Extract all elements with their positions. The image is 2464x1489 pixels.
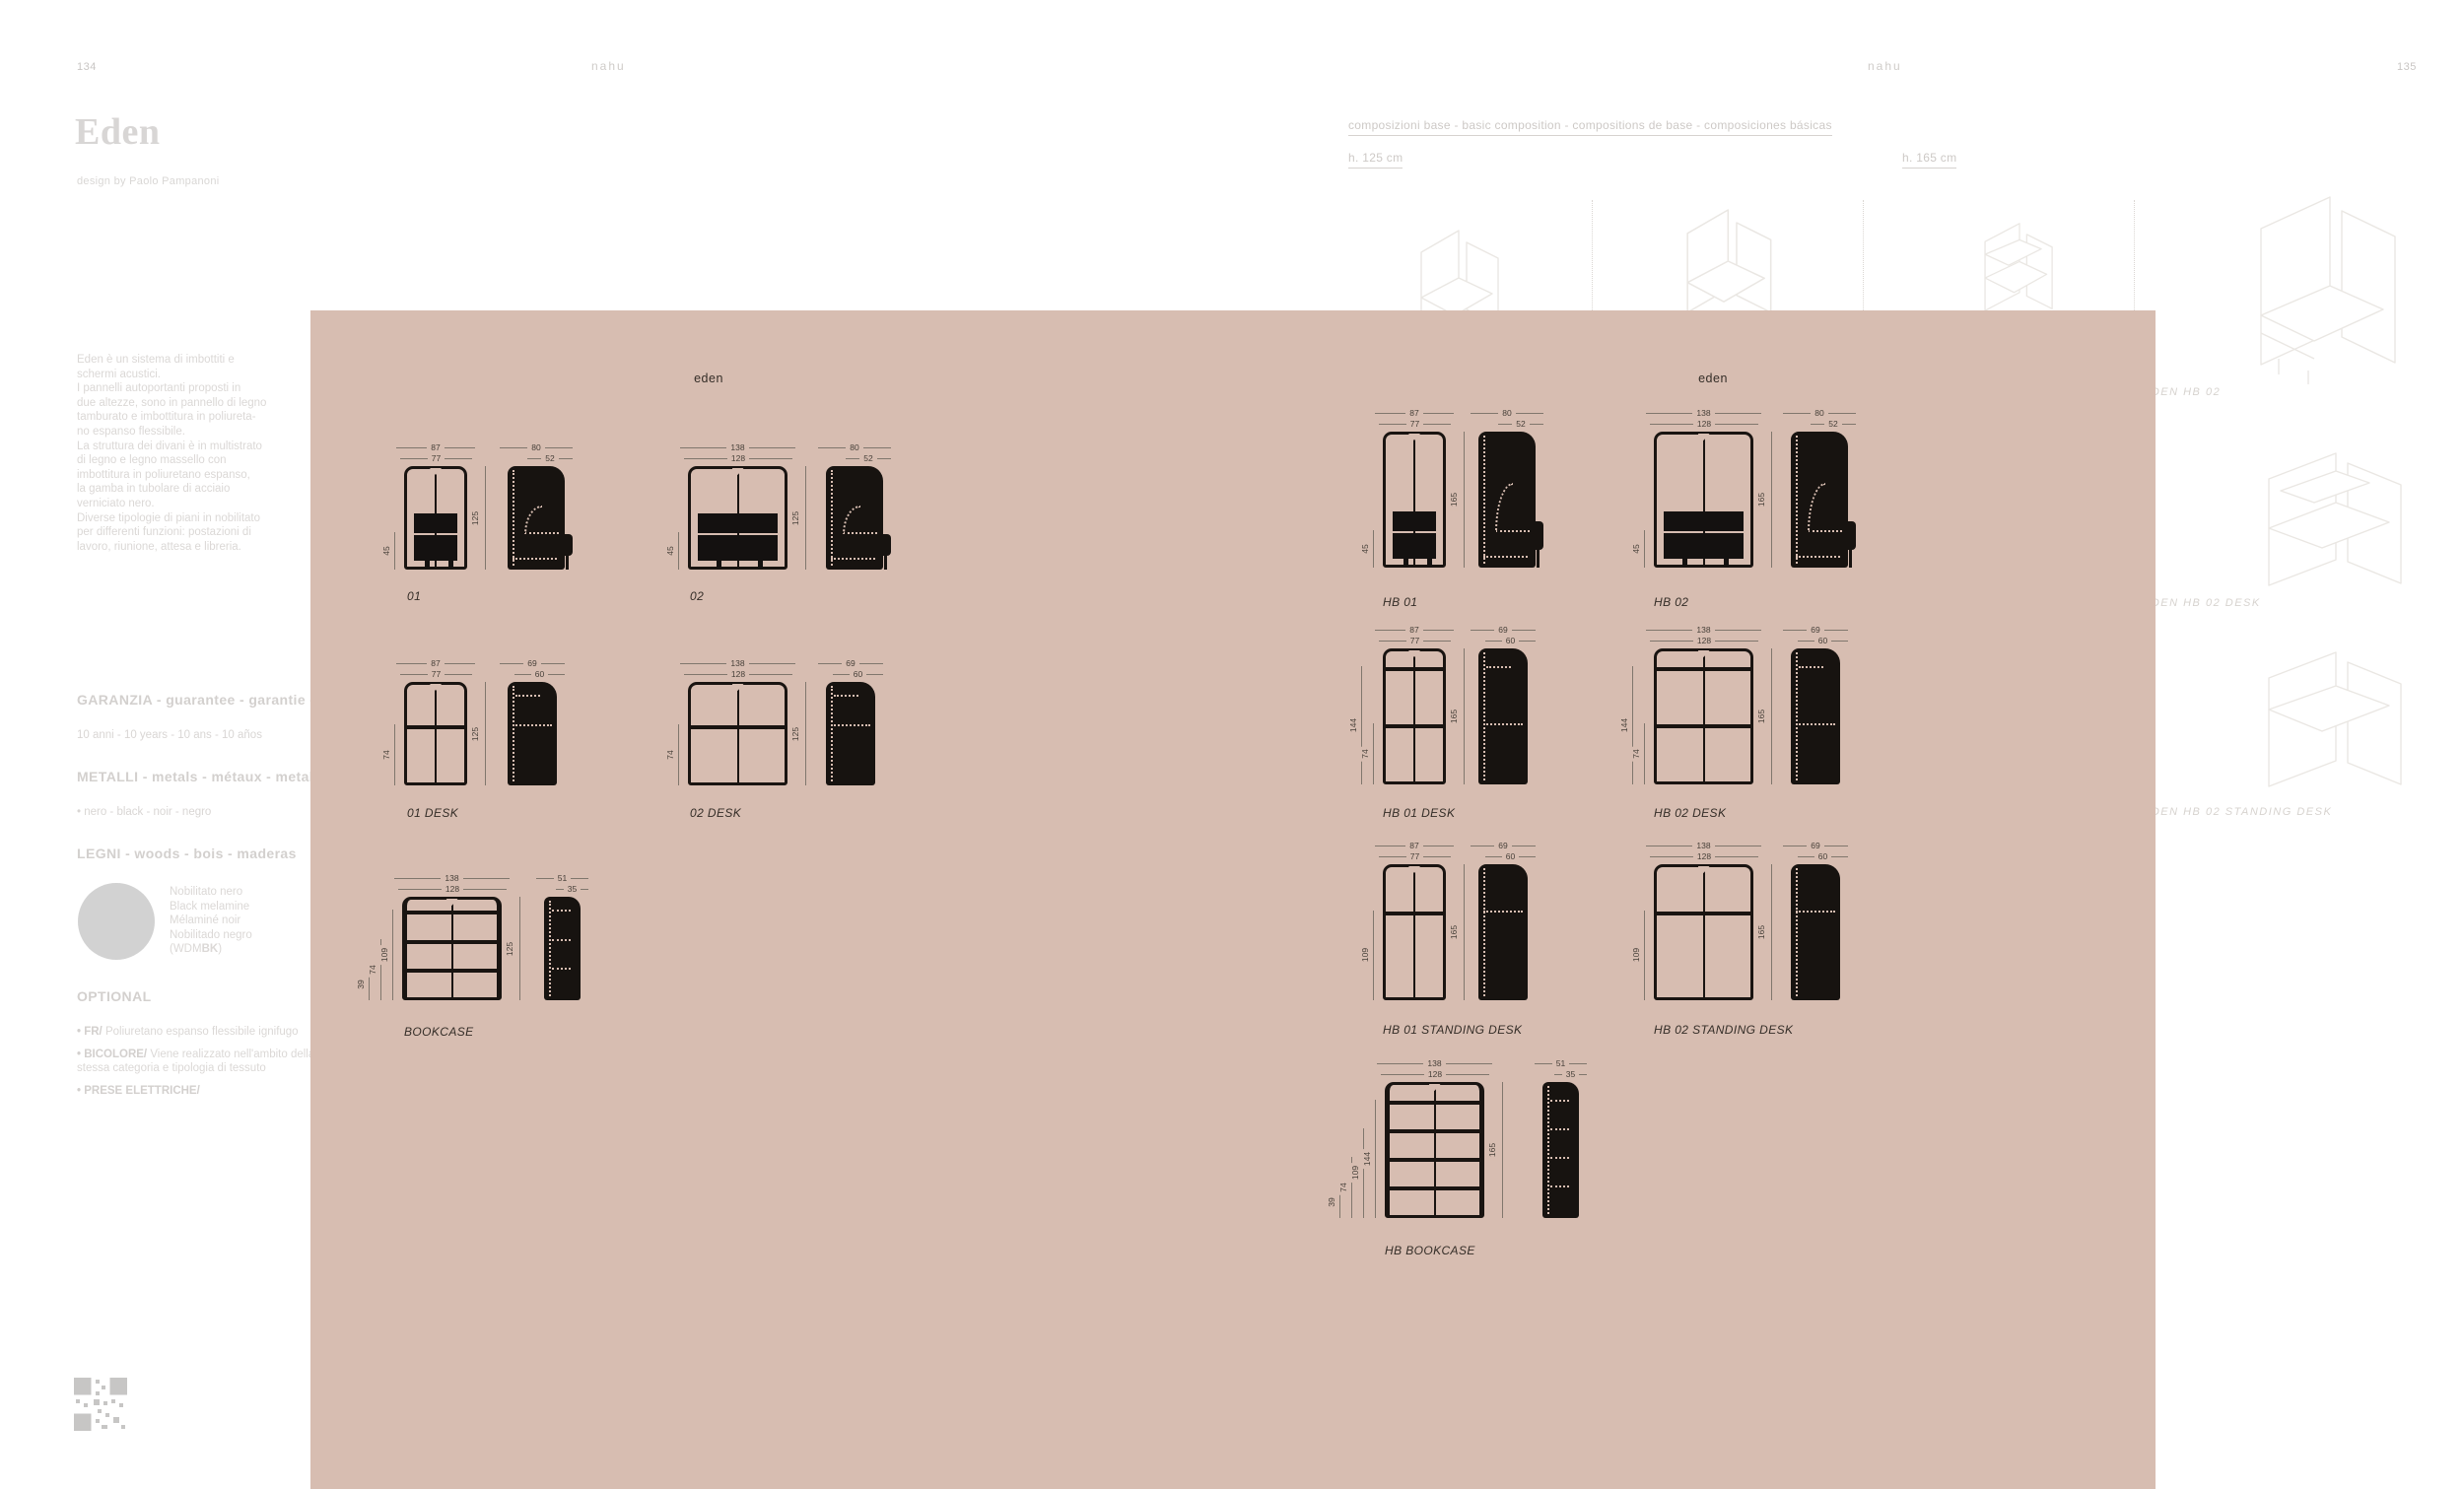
front-view-hb-01-desk (1383, 648, 1446, 784)
side-view-hb-01-desk (1478, 648, 1528, 784)
dimension-row: 87 (396, 442, 475, 452)
diagram-label-hb-02-desk: HB 02 DESK (1654, 806, 1726, 820)
dimension-line-left (1632, 666, 1633, 784)
dimension-line-right (805, 682, 806, 785)
dimension-line-left (1644, 723, 1645, 784)
dimension-number: 144 (1362, 1149, 1372, 1169)
dimension-row: 128 (1381, 1069, 1489, 1079)
front-view-hb-01 (1383, 432, 1446, 568)
dimension-row: 138 (1646, 625, 1761, 635)
dimension-number: 144 (1619, 715, 1629, 735)
dimension-row: 52 (527, 453, 573, 463)
dimension-row: 60 (1798, 851, 1848, 861)
catalog-page: 134 nahu nahu 135 Eden design by Paolo P… (0, 0, 2464, 1489)
dimension-row: 51 (536, 873, 588, 883)
dimension-row: 80 (1471, 408, 1543, 418)
dimension-number: 109 (1350, 1163, 1360, 1183)
diagram-label-hb-02: HB 02 (1654, 595, 1688, 609)
side-view-bookcase (544, 897, 581, 1000)
side-view-hb-01 (1478, 432, 1536, 568)
dimension-number: 45 (665, 543, 675, 558)
dimension-number: 125 (790, 723, 800, 743)
group-heading: eden (1698, 372, 1728, 385)
front-view-hb-02-desk (1654, 648, 1753, 784)
side-view-hb-02-standing-desk (1791, 864, 1840, 1000)
dimension-row: 35 (1554, 1069, 1587, 1079)
dimension-row: 80 (1783, 408, 1856, 418)
dimension-row: 128 (684, 453, 792, 463)
dimension-line-right (519, 897, 520, 1000)
dimension-row: 51 (1535, 1058, 1587, 1068)
dimension-number: 45 (1360, 541, 1370, 556)
diagram-layer: eden877745125805201138128451258052028777… (0, 0, 2464, 1489)
dimension-line-right (485, 466, 486, 570)
pink-overlay-panel: eden877745125805201138128451258052028777… (310, 310, 2156, 1489)
dimension-line-left (1644, 530, 1645, 568)
dimension-line-left (678, 532, 679, 570)
dimension-number: 109 (1360, 945, 1370, 965)
dimension-row: 77 (1379, 419, 1451, 429)
dimension-number: 125 (470, 723, 480, 743)
dimension-line-right (485, 682, 486, 785)
dimension-row: 69 (1471, 841, 1536, 850)
dimension-line-right (1771, 648, 1772, 784)
dimension-number: 125 (790, 508, 800, 527)
diagram-label-hb-bookcase: HB BOOKCASE (1385, 1244, 1475, 1257)
dimension-number: 74 (1360, 746, 1370, 761)
dimension-line-right (805, 466, 806, 570)
dimension-row: 60 (1798, 636, 1848, 645)
dimension-row: 77 (1379, 636, 1451, 645)
dimension-number: 144 (1348, 715, 1358, 735)
diagram-label-bookcase: BOOKCASE (404, 1025, 474, 1039)
dimension-line-left (678, 724, 679, 785)
dimension-line-right (1464, 432, 1465, 568)
side-view-hb-02 (1791, 432, 1848, 568)
dimension-row: 138 (680, 442, 795, 452)
dimension-row: 138 (1646, 841, 1761, 850)
front-view-hb-02 (1654, 432, 1753, 568)
front-view-hb-bookcase (1385, 1082, 1484, 1218)
dimension-row: 35 (556, 884, 588, 894)
dimension-row: 87 (396, 658, 475, 668)
diagram-label-hb-01-standing-desk: HB 01 STANDING DESK (1383, 1023, 1522, 1037)
dimension-row: 52 (846, 453, 891, 463)
front-view-bookcase (402, 897, 502, 1000)
dimension-number: 109 (379, 945, 389, 965)
dimension-row: 52 (1811, 419, 1856, 429)
dimension-line-right (1771, 864, 1772, 1000)
dimension-number: 165 (1756, 922, 1766, 942)
dimension-row: 69 (1783, 841, 1848, 850)
front-view-02-desk (688, 682, 787, 785)
dimension-number: 39 (1327, 1194, 1336, 1209)
dimension-number: 39 (356, 977, 366, 991)
dimension-line-left (1644, 911, 1645, 1000)
dimension-row: 77 (400, 453, 472, 463)
dimension-number: 74 (368, 962, 377, 977)
dimension-number: 74 (381, 747, 391, 762)
dimension-number: 74 (1631, 746, 1641, 761)
dimension-line-left (394, 532, 395, 570)
diagram-label-hb-02-standing-desk: HB 02 STANDING DESK (1654, 1023, 1793, 1037)
side-view-02-desk (826, 682, 875, 785)
front-view-01-desk (404, 682, 467, 785)
dimension-row: 87 (1375, 408, 1454, 418)
side-view-01 (508, 466, 565, 570)
group-heading: eden (694, 372, 723, 385)
dimension-number: 45 (1631, 541, 1641, 556)
dimension-line-left (1375, 1100, 1376, 1218)
side-view-hb-bookcase (1542, 1082, 1579, 1218)
dimension-line-left (1373, 911, 1374, 1000)
dimension-line-right (1502, 1082, 1503, 1218)
dimension-number: 165 (1756, 707, 1766, 726)
diagram-label-hb-01: HB 01 (1383, 595, 1417, 609)
dimension-line-right (1771, 432, 1772, 568)
dimension-row: 128 (684, 669, 792, 679)
dimension-number: 165 (1756, 490, 1766, 509)
dimension-line-right (1464, 648, 1465, 784)
dimension-number: 165 (1449, 490, 1459, 509)
dimension-line-left (394, 724, 395, 785)
side-view-hb-01-standing-desk (1478, 864, 1528, 1000)
dimension-line-left (1373, 723, 1374, 784)
dimension-row: 60 (1485, 851, 1536, 861)
dimension-row: 128 (398, 884, 507, 894)
front-view-02 (688, 466, 787, 570)
dimension-row: 138 (1646, 408, 1761, 418)
dimension-number: 74 (1338, 1180, 1348, 1194)
diagram-label-02-desk: 02 DESK (690, 806, 741, 820)
dimension-row: 128 (1650, 851, 1758, 861)
dimension-row: 69 (818, 658, 883, 668)
dimension-number: 45 (381, 543, 391, 558)
dimension-line-left (392, 910, 393, 1000)
dimension-row: 87 (1375, 625, 1454, 635)
dimension-line-right (1464, 864, 1465, 1000)
dimension-row: 138 (394, 873, 510, 883)
dimension-row: 52 (1498, 419, 1543, 429)
dimension-line-left (1361, 666, 1362, 784)
dimension-line-left (1373, 530, 1374, 568)
dimension-line-left (1363, 1128, 1364, 1218)
dimension-row: 69 (1471, 625, 1536, 635)
dimension-row: 138 (680, 658, 795, 668)
dimension-row: 80 (500, 442, 573, 452)
diagram-label-01: 01 (407, 589, 421, 603)
side-view-02 (826, 466, 883, 570)
dimension-number: 125 (505, 938, 514, 958)
dimension-row: 60 (1485, 636, 1536, 645)
dimension-row: 80 (818, 442, 891, 452)
dimension-number: 165 (1487, 1140, 1497, 1160)
front-view-hb-01-standing-desk (1383, 864, 1446, 1000)
side-view-hb-02-desk (1791, 648, 1840, 784)
front-view-01 (404, 466, 467, 570)
front-view-hb-02-standing-desk (1654, 864, 1753, 1000)
dimension-row: 60 (833, 669, 883, 679)
dimension-number: 165 (1449, 707, 1459, 726)
dimension-row: 77 (400, 669, 472, 679)
diagram-label-01-desk: 01 DESK (407, 806, 458, 820)
dimension-row: 69 (500, 658, 565, 668)
dimension-row: 60 (514, 669, 565, 679)
dimension-row: 87 (1375, 841, 1454, 850)
diagram-label-02: 02 (690, 589, 704, 603)
dimension-number: 74 (665, 747, 675, 762)
side-view-01-desk (508, 682, 557, 785)
diagram-label-hb-01-desk: HB 01 DESK (1383, 806, 1455, 820)
dimension-row: 69 (1783, 625, 1848, 635)
dimension-number: 109 (1631, 945, 1641, 965)
dimension-row: 77 (1379, 851, 1451, 861)
dimension-row: 138 (1377, 1058, 1492, 1068)
dimension-row: 128 (1650, 636, 1758, 645)
dimension-row: 128 (1650, 419, 1758, 429)
dimension-number: 165 (1449, 922, 1459, 942)
dimension-number: 125 (470, 508, 480, 527)
